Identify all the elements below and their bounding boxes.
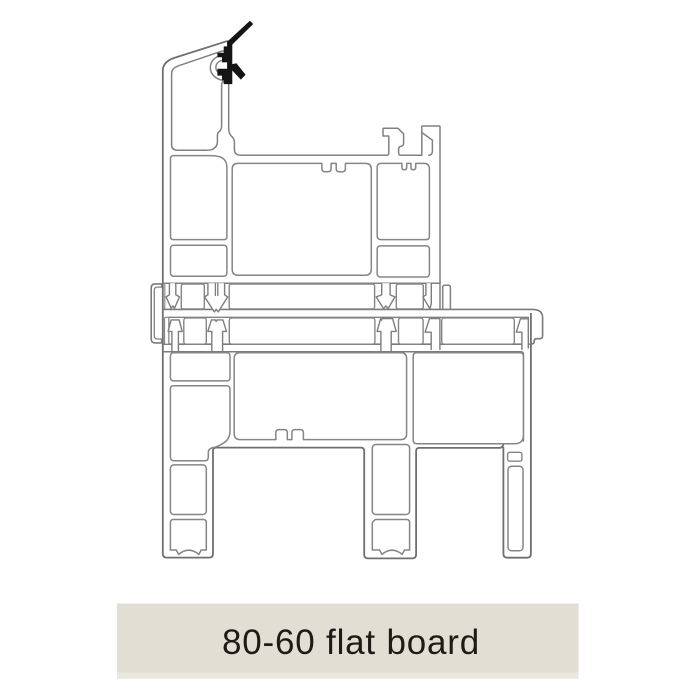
svg-text:80-60 flat board: 80-60 flat board [222, 623, 480, 662]
